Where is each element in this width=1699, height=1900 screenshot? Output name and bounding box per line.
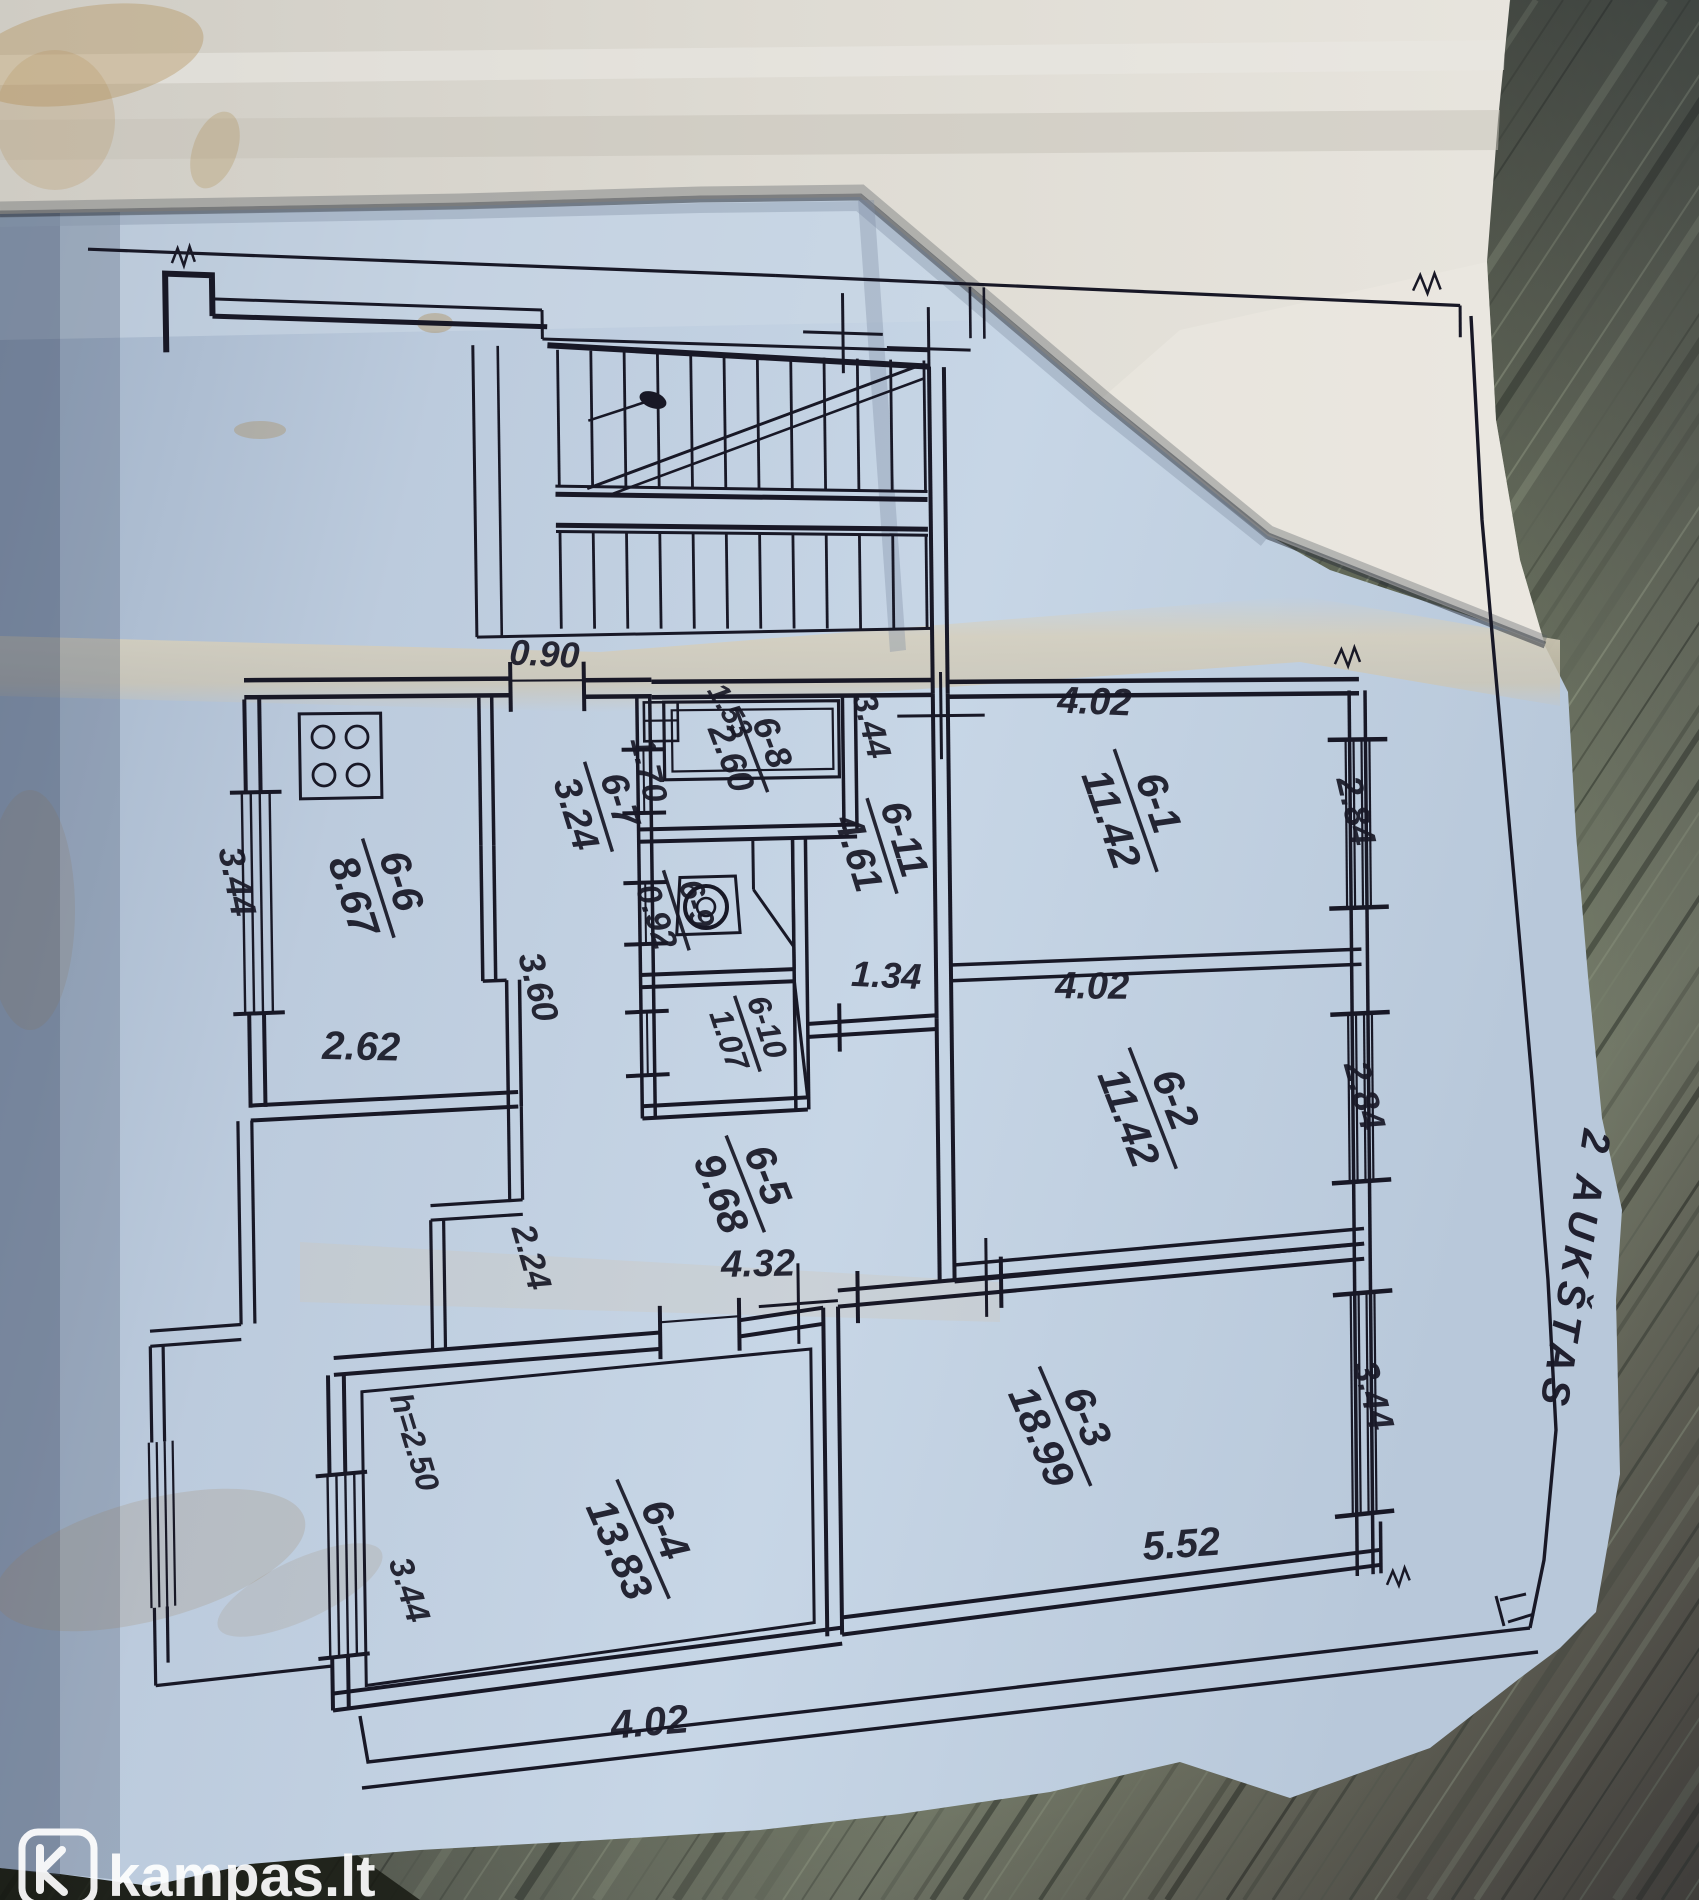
svg-text:kampas.lt: kampas.lt [108,1844,376,1900]
svg-text:2.62: 2.62 [321,1024,401,1070]
svg-text:5.52: 5.52 [1141,1520,1222,1570]
svg-text:4.02: 4.02 [1056,679,1133,724]
svg-text:1.34: 1.34 [850,953,922,997]
svg-text:4.02: 4.02 [608,1697,690,1748]
svg-text:4.02: 4.02 [1054,965,1129,1008]
svg-text:4.32: 4.32 [720,1242,796,1286]
svg-text:0.90: 0.90 [509,631,581,675]
